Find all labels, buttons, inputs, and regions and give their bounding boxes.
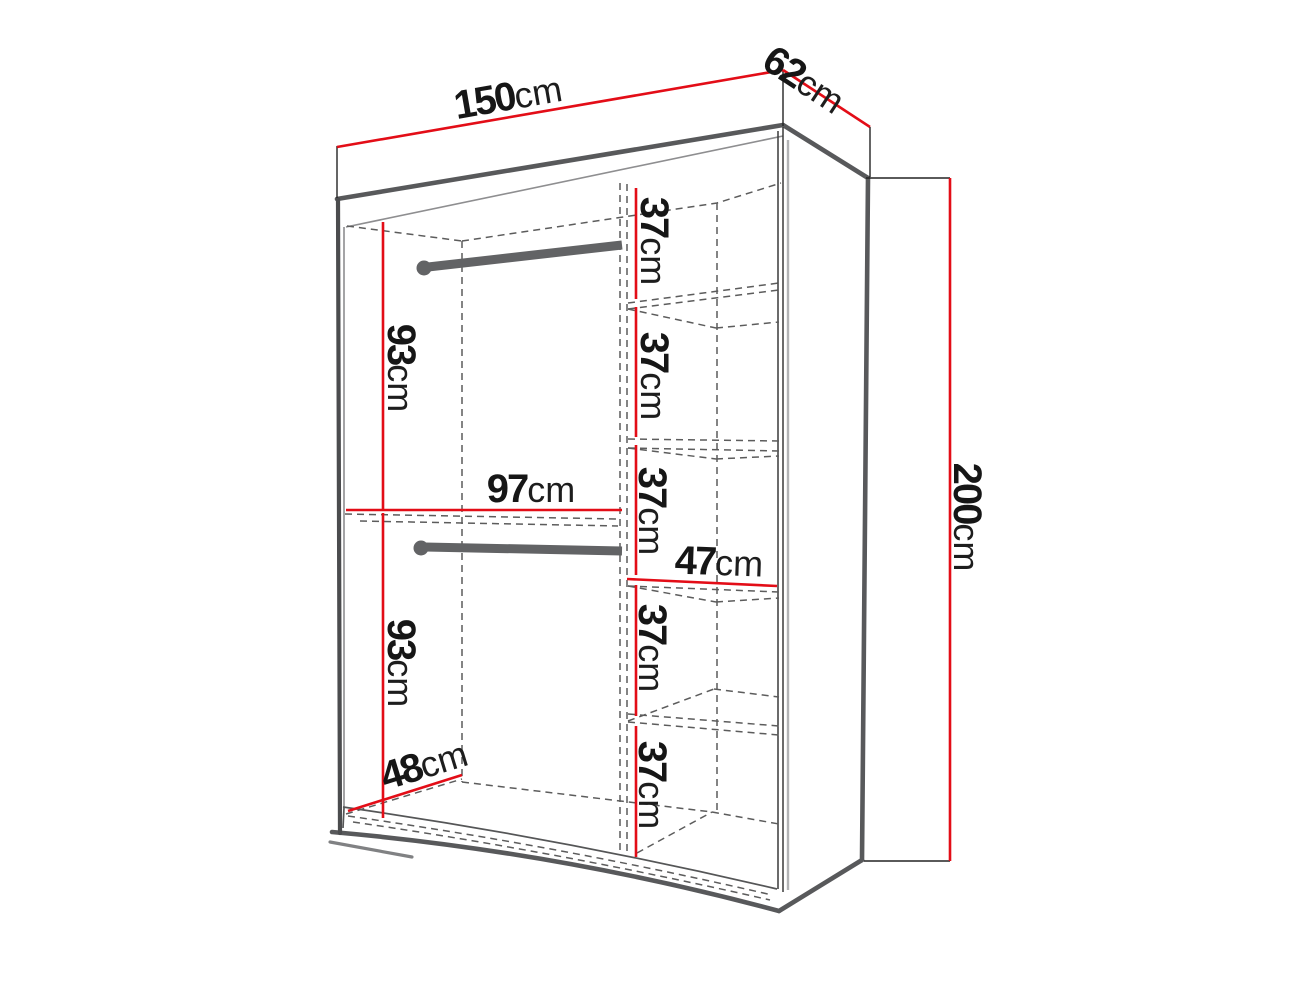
label-height-200: 200cm — [945, 463, 989, 572]
plinth-bottom-edge — [332, 832, 779, 911]
wardrobe-dimension-diagram: 150cm 62cm 200cm 93cm 97cm 93cm 48cm 47c… — [0, 0, 1311, 983]
label-shelf-37-5: 37cm — [630, 741, 674, 830]
label-shelf-37-1: 37cm — [632, 197, 676, 286]
label-shelf-37-4: 37cm — [630, 604, 674, 693]
shelf2-front-top-dashed — [628, 439, 779, 441]
shelf2-front-bottom-dashed — [628, 448, 779, 451]
ceiling-left-depth-dashed — [347, 226, 462, 241]
left-front-edge — [338, 199, 340, 833]
label-shelf-37-3: 37cm — [630, 467, 674, 556]
upper-rod-end-cap — [417, 261, 432, 276]
label-upper-93: 93cm — [379, 324, 423, 413]
floor-back-edge-left-dashed — [462, 782, 712, 812]
interior-floor-front-edge — [343, 807, 777, 889]
diagram-canvas: 150cm 62cm 200cm 93cm 97cm 93cm 48cm 47c… — [0, 0, 1311, 983]
label-shelf-47: 47cm — [674, 538, 764, 585]
shelf4-front-top-dashed — [628, 714, 779, 726]
shelf4-depth-dashed — [628, 689, 714, 721]
plinth-left-tick — [343, 808, 344, 828]
bottom-right-depth-edge — [779, 860, 862, 911]
top-right-depth-edge — [783, 125, 868, 178]
shelf2-back-dashed — [716, 456, 779, 459]
interior-top-edge — [346, 136, 783, 227]
label-depth-62: 62cm — [755, 37, 853, 122]
left-base-shadow-edge — [330, 842, 412, 857]
lower-rod-end-cap — [414, 541, 429, 556]
shelf4-back-dashed — [714, 689, 779, 697]
ceiling-back-edge-dashed — [462, 183, 781, 241]
shelf3-front-dashed — [628, 586, 779, 592]
label-shelf-37-2: 37cm — [632, 332, 676, 421]
label-width-97: 97cm — [487, 467, 576, 511]
mid-divider-bottom-dashed — [360, 521, 618, 526]
label-lower-93: 93cm — [379, 619, 423, 708]
shelf4-front-bottom-dashed — [628, 722, 779, 735]
shelf1-back-dashed — [716, 322, 779, 328]
right-front-edge — [862, 178, 868, 860]
shelf3-back-dashed — [716, 598, 779, 602]
upper-hanging-rod — [428, 245, 622, 267]
dimension-labels: 150cm 62cm 200cm 93cm 97cm 93cm 48cm 47c… — [375, 37, 989, 829]
mid-divider-front-dashed — [345, 514, 618, 519]
label-depth-48: 48cm — [375, 731, 472, 799]
floor-column-back-dashed — [712, 812, 779, 824]
lower-hanging-rod — [425, 547, 622, 551]
label-width-150: 150cm — [451, 66, 566, 128]
shelf1-depth-dashed — [628, 309, 716, 328]
